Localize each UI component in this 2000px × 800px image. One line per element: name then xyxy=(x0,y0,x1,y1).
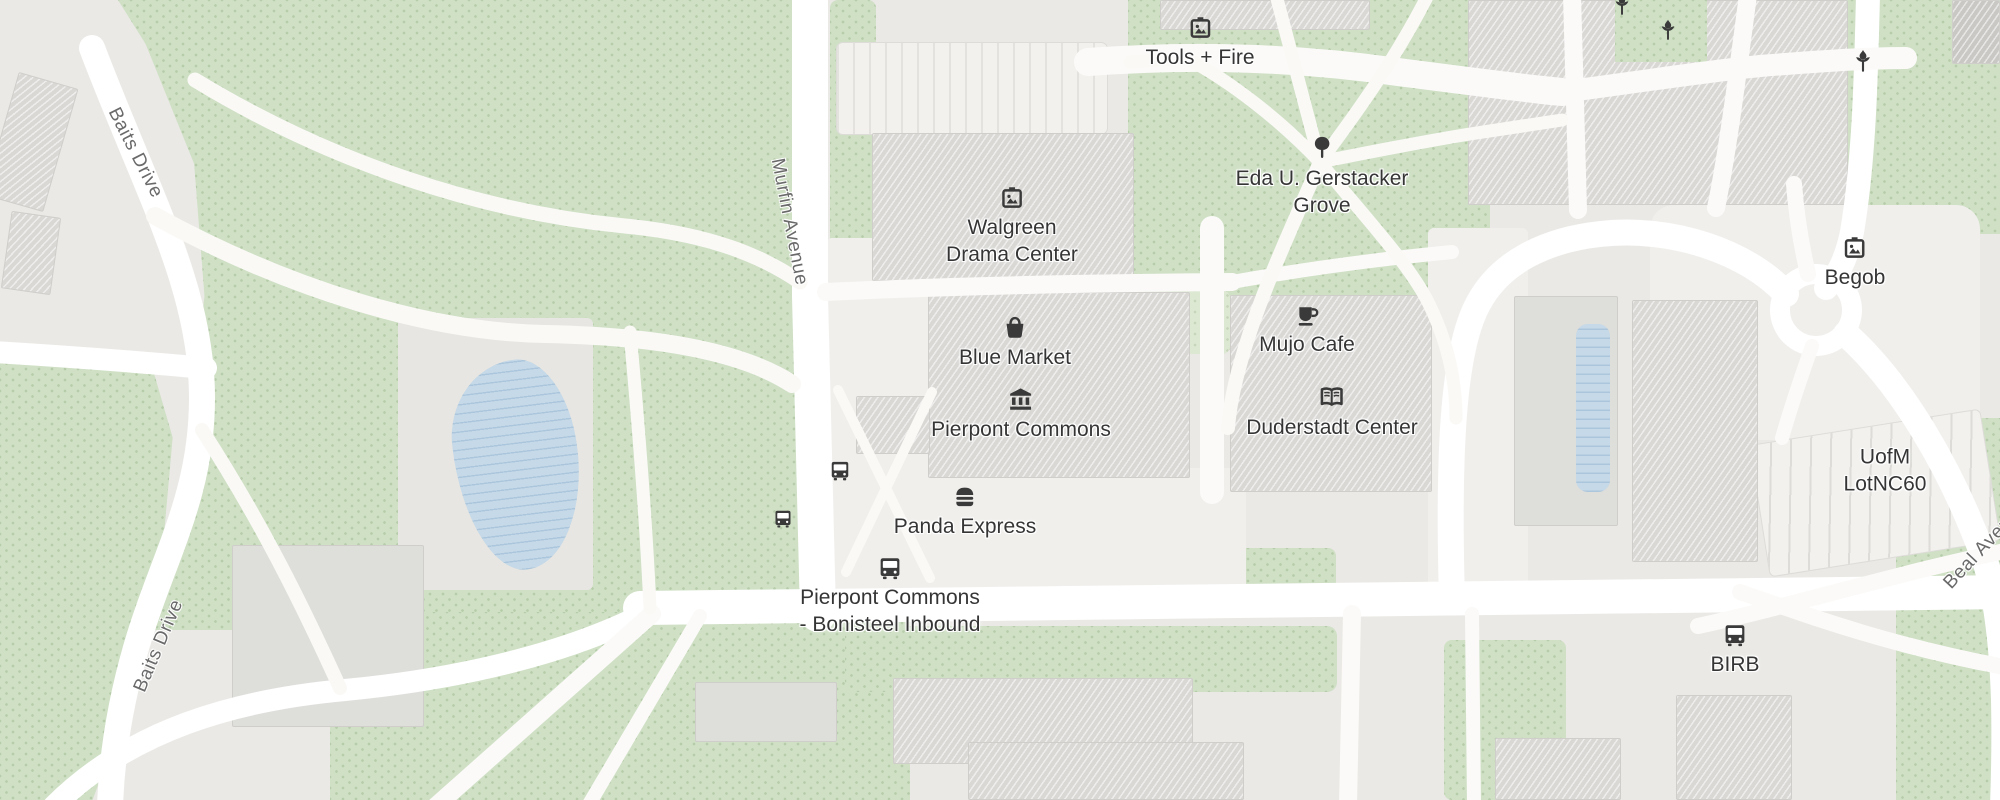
building xyxy=(856,396,930,454)
building xyxy=(1495,738,1621,800)
poi-pierpont-commons[interactable]: Pierpont Commons xyxy=(931,386,1111,443)
art-icon[interactable] xyxy=(1187,15,1213,41)
restaurant-icon[interactable] xyxy=(952,484,978,510)
poi-birb-stop[interactable]: BIRB xyxy=(1710,623,1759,678)
poi-walgreen-drama-center[interactable]: Walgreen Drama Center xyxy=(946,185,1078,269)
flower-icon xyxy=(1850,48,1876,74)
bus-stop-marker[interactable] xyxy=(829,460,851,482)
tree-icon[interactable] xyxy=(1308,135,1335,162)
poi-lot-nc60-label[interactable]: UofM LotNC60 xyxy=(1828,444,1943,499)
reflecting-pool xyxy=(1576,324,1610,492)
bus-stop-marker[interactable] xyxy=(773,509,793,529)
poi-bonisteel-inbound-stop[interactable]: Pierpont Commons - Bonisteel Inbound xyxy=(800,556,981,639)
building xyxy=(0,72,78,212)
bus-icon[interactable] xyxy=(878,556,903,581)
flower-icon xyxy=(1610,0,1634,17)
poi-label[interactable]: Pierpont Commons - Bonisteel Inbound xyxy=(800,584,981,639)
building xyxy=(968,742,1244,800)
art-icon[interactable] xyxy=(1842,235,1868,261)
poi-begob[interactable]: Begob xyxy=(1825,235,1886,291)
poi-mujo-cafe[interactable]: Mujo Cafe xyxy=(1259,302,1355,358)
poi-label[interactable]: BIRB xyxy=(1710,651,1759,678)
art-icon[interactable] xyxy=(999,185,1025,211)
flower-icon xyxy=(1656,18,1680,42)
building xyxy=(1676,695,1792,800)
poi-label[interactable]: Panda Express xyxy=(894,513,1036,540)
building xyxy=(1632,300,1758,562)
poi-label[interactable]: Blue Market xyxy=(959,344,1071,371)
building xyxy=(695,682,837,742)
poi-gerstacker-grove[interactable]: Eda U. Gerstacker Grove xyxy=(1236,135,1409,220)
poi-label[interactable]: Tools + Fire xyxy=(1145,44,1254,71)
poi-label[interactable]: Walgreen Drama Center xyxy=(946,214,1078,269)
poi-label[interactable]: Pierpont Commons xyxy=(931,416,1111,443)
poi-tools-fire[interactable]: Tools + Fire xyxy=(1145,15,1254,71)
shopping-basket-icon[interactable] xyxy=(1002,315,1028,341)
poi-blue-market[interactable]: Blue Market xyxy=(959,315,1071,371)
cafe-icon[interactable] xyxy=(1294,302,1320,328)
poi-duderstadt-center[interactable]: Duderstadt Center xyxy=(1246,384,1418,441)
parking-lot xyxy=(836,42,1108,135)
building xyxy=(1952,0,2000,64)
building xyxy=(1,211,61,295)
poi-label[interactable]: Begob xyxy=(1825,264,1886,291)
poi-label[interactable]: Duderstadt Center xyxy=(1246,414,1418,441)
plaza xyxy=(1428,228,1528,610)
book-icon[interactable] xyxy=(1319,384,1346,411)
building xyxy=(232,545,424,727)
map-canvas[interactable]: Baits Drive Baits Drive Murfin Avenue Be… xyxy=(0,0,2000,800)
street-label-baits-drive-north: Baits Drive xyxy=(103,104,167,202)
poi-label[interactable]: Mujo Cafe xyxy=(1259,331,1355,358)
poi-panda-express[interactable]: Panda Express xyxy=(894,484,1036,540)
park-area xyxy=(0,358,178,800)
bus-icon[interactable] xyxy=(1722,623,1747,648)
poi-label[interactable]: Eda U. Gerstacker Grove xyxy=(1236,165,1409,220)
bank-icon[interactable] xyxy=(1008,386,1035,413)
